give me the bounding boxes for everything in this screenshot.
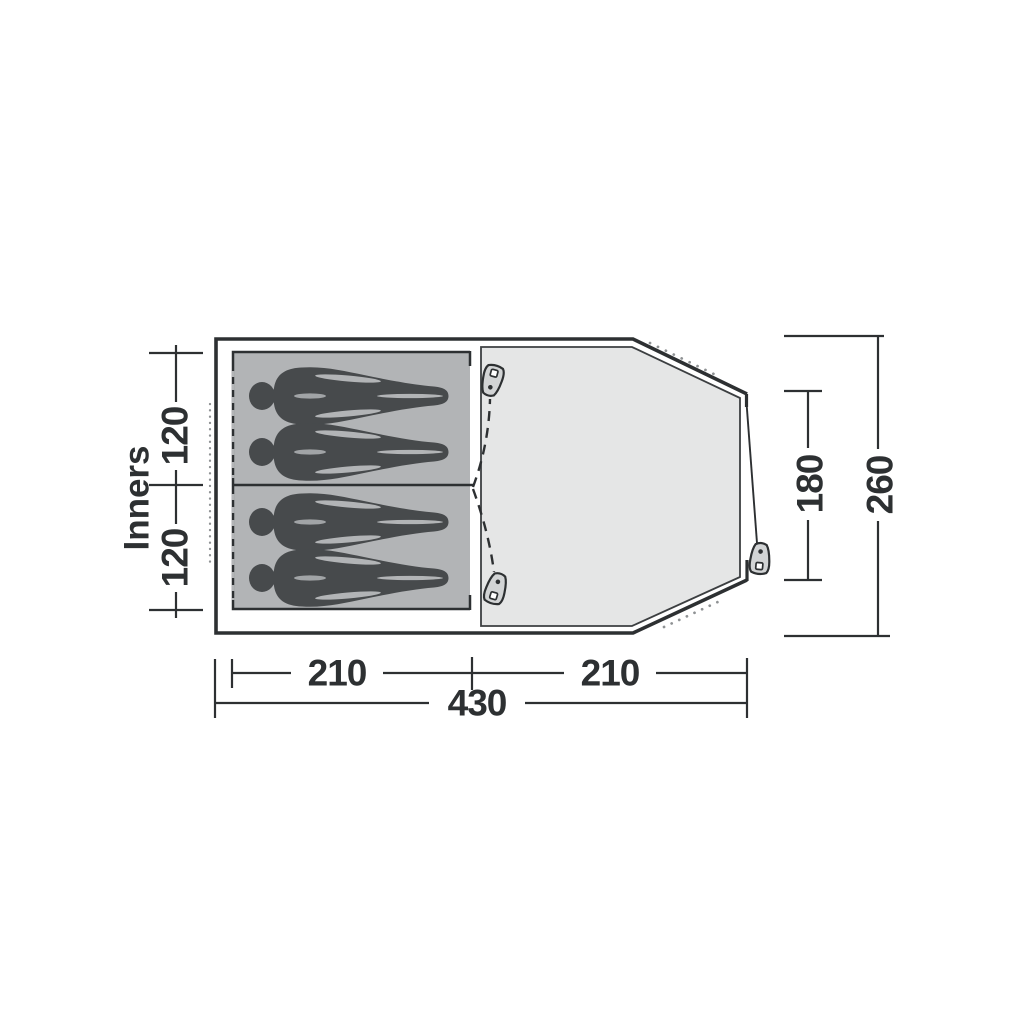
tent-floorplan-page: Inners 120 120 180 260 210 210 430 [0,0,1024,1024]
inners-label: Inners [118,445,157,550]
living-area-floor [481,347,740,626]
dim-sleep-cabin-top: 120 [155,406,196,465]
dim-sleep-cabin-bottom: 120 [155,528,196,587]
tent-peg-icon [749,542,771,575]
dim-front-opening: 180 [790,454,831,513]
dim-total-depth: 260 [860,455,901,514]
dim-sleep-area-width: 210 [308,653,367,694]
front-guyline [746,396,771,575]
tent-floorplan-diagram: Inners 120 120 180 260 210 210 430 [0,0,1024,1024]
dim-living-area-width: 210 [581,653,640,694]
dim-total-width: 430 [448,683,507,724]
